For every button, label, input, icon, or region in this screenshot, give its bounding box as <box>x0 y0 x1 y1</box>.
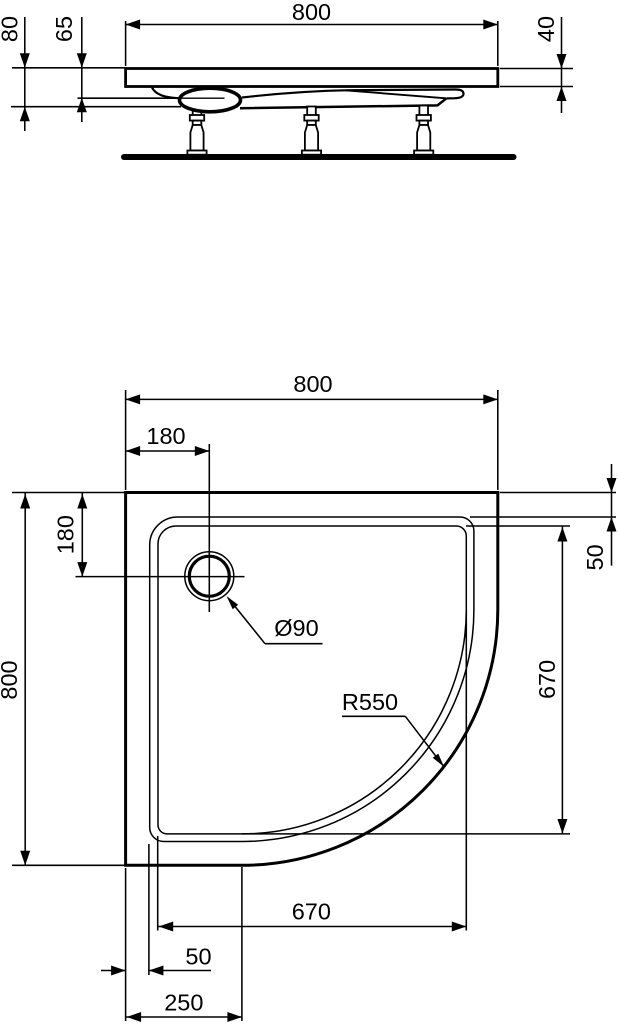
svg-text:800: 800 <box>292 0 331 25</box>
svg-text:670: 670 <box>534 660 560 699</box>
svg-text:800: 800 <box>0 660 22 699</box>
svg-text:80: 80 <box>0 16 23 42</box>
svg-text:250: 250 <box>164 990 203 1016</box>
svg-text:50: 50 <box>582 544 608 570</box>
svg-text:670: 670 <box>292 898 331 924</box>
svg-text:50: 50 <box>185 943 211 969</box>
svg-text:65: 65 <box>51 16 77 42</box>
svg-text:40: 40 <box>533 16 559 42</box>
svg-text:800: 800 <box>293 371 332 397</box>
svg-text:R550: R550 <box>342 689 398 715</box>
svg-text:180: 180 <box>146 423 185 449</box>
svg-text:Ø90: Ø90 <box>274 615 318 641</box>
svg-text:180: 180 <box>52 515 78 554</box>
